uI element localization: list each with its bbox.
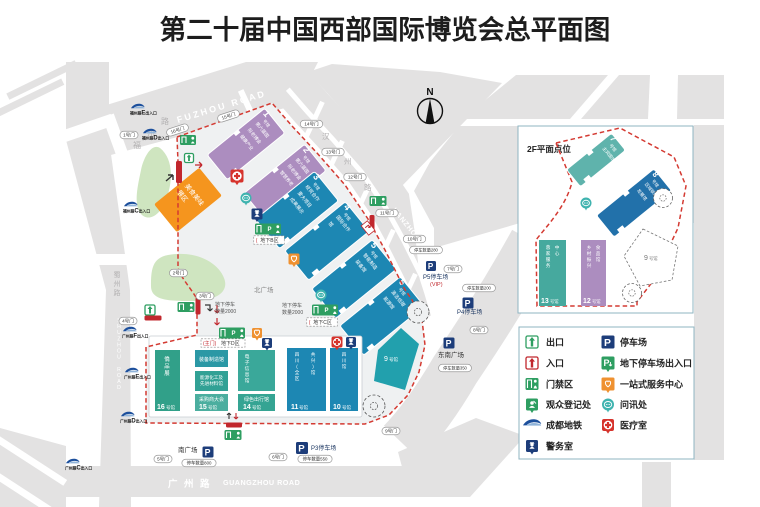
svg-text:路: 路	[161, 116, 169, 126]
svg-text:停车数量350: 停车数量350	[443, 365, 467, 372]
svg-text:家: 家	[546, 250, 551, 256]
svg-text:川: 川	[342, 358, 347, 363]
svg-text:中: 中	[555, 244, 560, 251]
svg-text:11: 11	[291, 404, 299, 411]
svg-text:16: 16	[157, 404, 165, 411]
svg-text:P5停车场: P5停车场	[423, 273, 448, 281]
svg-text:停车场: 停车场	[620, 336, 647, 347]
svg-text:区: 区	[295, 376, 300, 381]
svg-text:停车数量800: 停车数量800	[187, 460, 212, 467]
svg-text:3号门: 3号门	[199, 293, 211, 300]
svg-text:展: 展	[164, 370, 170, 377]
svg-text:馆: 馆	[245, 377, 250, 384]
svg-text:P: P	[298, 444, 305, 455]
svg-text:务: 务	[546, 262, 551, 269]
svg-text:14号门: 14号门	[304, 121, 319, 128]
svg-text:食: 食	[596, 244, 601, 251]
svg-text:地下停车场出入口: 地下停车场出入口	[620, 357, 692, 368]
svg-text:2F平面点位: 2F平面点位	[527, 144, 571, 154]
svg-text:U: U	[117, 330, 121, 336]
svg-text:地下C区: 地下C区	[313, 319, 332, 326]
svg-text:乡: 乡	[587, 245, 592, 250]
svg-text:8号门: 8号门	[473, 327, 485, 334]
svg-text:心: 心	[555, 250, 560, 256]
svg-text:P: P	[603, 358, 609, 368]
svg-text:U: U	[117, 355, 121, 361]
svg-text:15: 15	[199, 404, 207, 411]
svg-text:(主门): (主门)	[203, 340, 217, 347]
svg-text:10: 10	[333, 404, 341, 411]
svg-text:兴: 兴	[587, 262, 592, 269]
svg-text:O: O	[117, 373, 121, 379]
svg-text:福: 福	[133, 141, 141, 150]
svg-text:号馆: 号馆	[389, 356, 398, 363]
svg-text:装备制造馆: 装备制造馆	[199, 356, 224, 363]
svg-text:川: 川	[295, 358, 300, 363]
svg-text:号馆: 号馆	[342, 404, 351, 411]
svg-text:馆: 馆	[596, 256, 601, 263]
svg-text:地下D区: 地下D区	[221, 340, 240, 347]
svg-text:品: 品	[164, 363, 169, 370]
svg-text:A: A	[117, 379, 121, 385]
svg-text:息: 息	[245, 371, 250, 378]
svg-text:11号门: 11号门	[380, 210, 394, 217]
svg-text:成都地铁: 成都地铁	[546, 419, 582, 430]
svg-text:出口: 出口	[546, 336, 564, 347]
svg-text:汉: 汉	[322, 132, 330, 141]
svg-text:南广场: 南广场	[178, 445, 198, 454]
svg-text:13号门: 13号门	[326, 149, 341, 156]
svg-text:号馆: 号馆	[252, 404, 261, 411]
svg-text:先进材料馆: 先进材料馆	[200, 380, 223, 387]
svg-text:P: P	[604, 338, 611, 349]
svg-text:地下停车: 地下停车	[215, 301, 235, 308]
svg-text:P: P	[446, 338, 452, 348]
svg-text:地下停车: 地下停车	[282, 302, 302, 309]
svg-text:2号门: 2号门	[173, 270, 185, 277]
svg-text:号馆: 号馆	[166, 404, 175, 411]
svg-text:馆: 馆	[311, 369, 316, 376]
svg-text:号馆: 号馆	[208, 404, 217, 411]
svg-text:P: P	[325, 308, 329, 314]
svg-text:路: 路	[200, 478, 210, 490]
svg-text:子: 子	[245, 359, 250, 366]
svg-text:北广场: 北广场	[254, 285, 274, 294]
svg-text:H: H	[117, 342, 121, 348]
svg-text:第二十届中国西部国际博览会总平面图: 第二十届中国西部国际博览会总平面图	[160, 15, 611, 45]
svg-text:5号门: 5号门	[157, 456, 169, 463]
svg-text:振: 振	[587, 256, 592, 263]
svg-text:四: 四	[342, 352, 347, 357]
svg-text:兴: 兴	[311, 357, 316, 364]
svg-text:6号门: 6号门	[272, 454, 284, 461]
svg-text:P: P	[232, 331, 236, 337]
svg-text:州: 州	[114, 280, 121, 288]
svg-text:R: R	[117, 367, 121, 373]
svg-text:H: H	[117, 324, 121, 330]
svg-text:9: 9	[384, 356, 388, 363]
svg-text:号馆: 号馆	[592, 298, 601, 305]
svg-text:一站式服务中心: 一站式服务中心	[620, 378, 683, 389]
svg-text:1号门: 1号门	[123, 132, 135, 139]
svg-text:信: 信	[245, 365, 250, 372]
svg-text:停车数量550: 停车数量550	[303, 456, 328, 463]
svg-text:四: 四	[295, 352, 300, 357]
svg-text:P: P	[268, 227, 272, 233]
svg-text:共: 共	[311, 351, 316, 358]
svg-text:蓉: 蓉	[546, 244, 551, 251]
svg-text:路: 路	[114, 288, 121, 297]
svg-text:电: 电	[245, 353, 250, 360]
svg-text:警务室: 警务室	[546, 440, 573, 451]
svg-text:绿色出行馆: 绿色出行馆	[244, 396, 269, 403]
svg-text:观众登记处: 观众登记处	[546, 399, 592, 410]
svg-text:东南广场: 东南广场	[438, 350, 465, 359]
svg-text:数量2000: 数量2000	[282, 309, 303, 316]
svg-text:P: P	[205, 447, 211, 457]
svg-text:能源化工及: 能源化工及	[200, 374, 223, 381]
svg-text:12: 12	[583, 298, 591, 305]
svg-text:7号门: 7号门	[447, 266, 459, 273]
svg-text:采购商大会: 采购商大会	[199, 396, 224, 403]
svg-text:(VIP): (VIP)	[430, 282, 443, 288]
svg-text:Z: Z	[117, 336, 120, 342]
svg-text:4号门: 4号门	[122, 318, 134, 325]
svg-text:13: 13	[541, 298, 549, 305]
svg-text:号馆: 号馆	[649, 255, 658, 262]
svg-text:僑: 僑	[164, 355, 170, 363]
svg-text:O: O	[117, 349, 121, 355]
svg-text:问讯处: 问讯处	[620, 399, 648, 410]
svg-text:地下B区: 地下B区	[260, 237, 278, 244]
svg-text:N: N	[426, 87, 433, 98]
svg-text:州: 州	[183, 479, 194, 490]
svg-text:号馆: 号馆	[299, 404, 308, 411]
svg-text:入口: 入口	[545, 358, 564, 368]
svg-text:P: P	[428, 262, 434, 271]
svg-text:P3停车场: P3停车场	[311, 444, 336, 452]
svg-text:路: 路	[364, 182, 372, 192]
svg-text:12号门: 12号门	[348, 174, 363, 181]
svg-text:14: 14	[243, 404, 251, 411]
svg-text:GUANGZHOU ROAD: GUANGZHOU ROAD	[223, 478, 300, 487]
svg-text:D: D	[117, 385, 121, 391]
svg-text:9: 9	[644, 255, 648, 262]
svg-text:停车数量280: 停车数量280	[414, 247, 438, 254]
svg-text:医疗室: 医疗室	[620, 419, 647, 430]
svg-text:州: 州	[344, 157, 352, 166]
svg-text:广: 广	[168, 478, 178, 490]
svg-text:全: 全	[295, 369, 300, 375]
svg-text:蜀: 蜀	[114, 271, 121, 279]
svg-text:门禁区: 门禁区	[546, 378, 573, 389]
svg-text:号馆: 号馆	[550, 298, 559, 305]
svg-text:P4停车场: P4停车场	[457, 308, 482, 316]
svg-text:10号门: 10号门	[407, 236, 422, 243]
svg-text:馆: 馆	[342, 363, 347, 370]
svg-text:停车数量200: 停车数量200	[467, 285, 491, 292]
svg-text:9号门: 9号门	[385, 428, 397, 435]
svg-text:数量2000: 数量2000	[215, 308, 236, 315]
svg-text:村: 村	[587, 250, 592, 256]
svg-text:P: P	[465, 298, 471, 308]
